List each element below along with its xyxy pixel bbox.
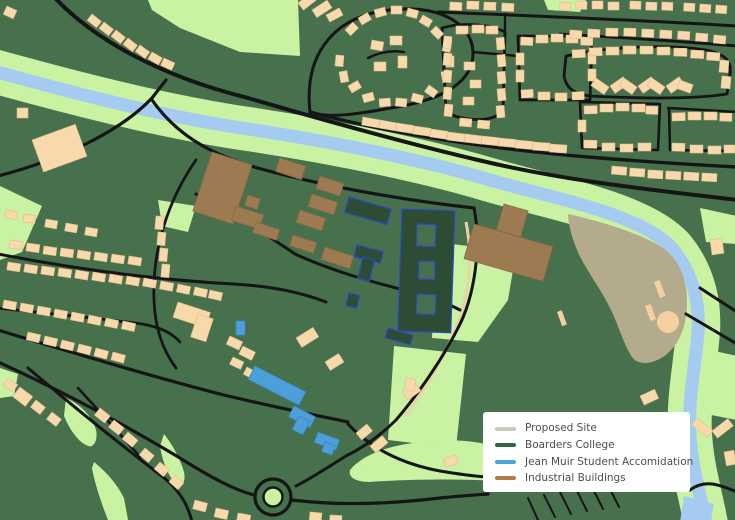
legend: Proposed Site Boarders College Jean Muir…	[483, 412, 690, 492]
legend-item-proposed-site: Proposed Site	[495, 421, 680, 436]
college-courtyards	[416, 224, 436, 315]
legend-label-proposed-site: Proposed Site	[525, 423, 597, 434]
sports-pitch	[388, 346, 466, 448]
map-container: Proposed Site Boarders College Jean Muir…	[0, 0, 735, 520]
legend-swatch-proposed-site-icon	[495, 427, 516, 431]
legend-item-student-accommodation: Jean Muir Student Accomidation	[495, 454, 680, 469]
legend-swatch-boarders-college-icon	[495, 443, 516, 447]
legend-label-industrial-buildings: Industrial Buildings	[525, 473, 626, 484]
legend-item-industrial-buildings: Industrial Buildings	[495, 471, 680, 486]
legend-swatch-student-accommodation-icon	[495, 460, 516, 464]
legend-swatch-industrial-buildings-icon	[495, 476, 516, 480]
legend-label-student-accommodation: Jean Muir Student Accomidation	[525, 457, 693, 468]
legend-item-boarders-college: Boarders College	[495, 438, 680, 453]
legend-label-boarders-college: Boarders College	[525, 440, 615, 451]
roundabout-island	[264, 488, 283, 507]
